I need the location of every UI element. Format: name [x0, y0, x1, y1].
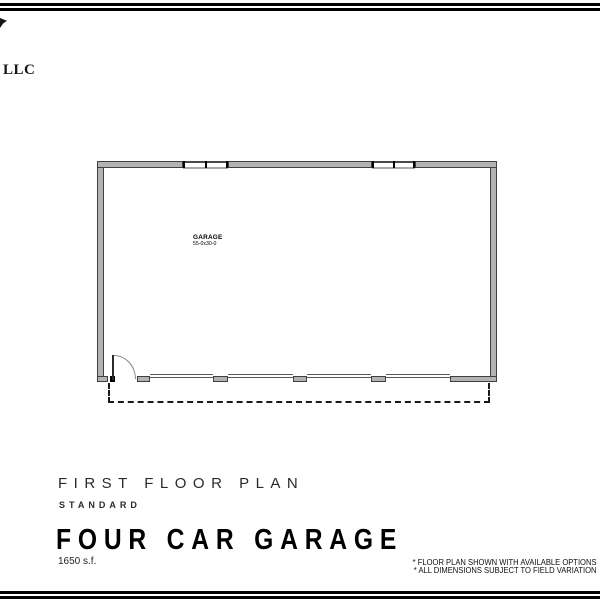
wall-pier: [137, 376, 150, 382]
plan-title: FIRST FLOOR PLAN: [58, 475, 304, 492]
window-tick: [393, 161, 395, 168]
slab-dashed-outline: [108, 383, 490, 403]
page-border-bottom: [0, 591, 600, 599]
wall-pier: [371, 376, 386, 382]
window: [372, 161, 415, 168]
wall-pier: [293, 376, 307, 382]
area-label: 1650 s.f.: [58, 556, 96, 567]
wall-bottom-segment: [450, 376, 497, 382]
model-name: FOUR CAR GARAGE: [56, 524, 403, 557]
page-border-top: [0, 3, 600, 11]
wall-top-segment: [228, 161, 372, 168]
note-line: * ALL DIMENSIONS SUBJECT TO FIELD VARIAT…: [413, 567, 597, 575]
wall-bottom-segment: [97, 376, 108, 382]
wall-top-segment: [415, 161, 497, 168]
window-tick: [183, 161, 185, 168]
wall-top-segment: [97, 161, 183, 168]
room-label-group: GARAGE 55-0x30-0: [193, 234, 223, 247]
logo-text: LLC: [3, 62, 35, 79]
window-tick: [205, 161, 207, 168]
wall-right: [490, 161, 497, 382]
door-swing-arc: [114, 355, 136, 379]
wall-pier: [213, 376, 228, 382]
window: [183, 161, 228, 168]
plan-subtitle: STANDARD: [59, 500, 141, 510]
disclaimer-notes: * FLOOR PLAN SHOWN WITH AVAILABLE OPTION…: [413, 559, 597, 575]
window-tick: [372, 161, 374, 168]
floor-plan: GARAGE 55-0x30-0: [97, 161, 497, 382]
room-label: GARAGE: [193, 234, 223, 241]
garage-door: [150, 374, 213, 378]
garage-door: [228, 374, 293, 378]
room-dimension: 55-0x30-0: [193, 241, 223, 247]
logo-mark-icon: [0, 18, 7, 28]
garage-door: [386, 374, 450, 378]
drawing-sheet: { "header": { "logo_text": "LLC" }, "pla…: [0, 0, 600, 600]
wall-left: [97, 161, 104, 382]
garage-door: [307, 374, 371, 378]
